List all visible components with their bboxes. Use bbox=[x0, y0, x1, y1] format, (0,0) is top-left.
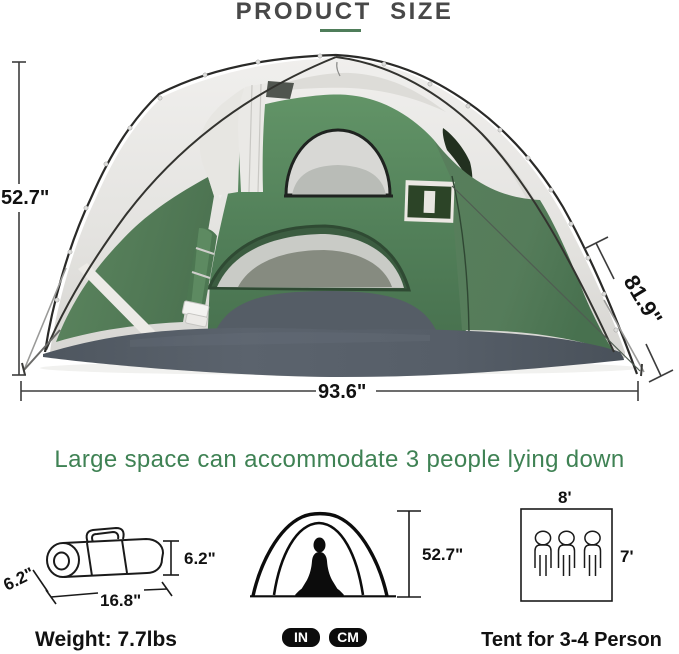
svg-text:52.7": 52.7" bbox=[422, 545, 463, 564]
svg-text:7': 7' bbox=[620, 547, 634, 566]
svg-text:6.2": 6.2" bbox=[0, 564, 37, 595]
svg-text:81.9": 81.9" bbox=[619, 271, 668, 330]
svg-text:16.8": 16.8" bbox=[100, 591, 141, 610]
svg-text:6.2": 6.2" bbox=[184, 549, 216, 568]
svg-text:93.6": 93.6" bbox=[318, 381, 366, 403]
svg-text:8': 8' bbox=[558, 488, 572, 507]
svg-text:52.7": 52.7" bbox=[1, 187, 49, 209]
